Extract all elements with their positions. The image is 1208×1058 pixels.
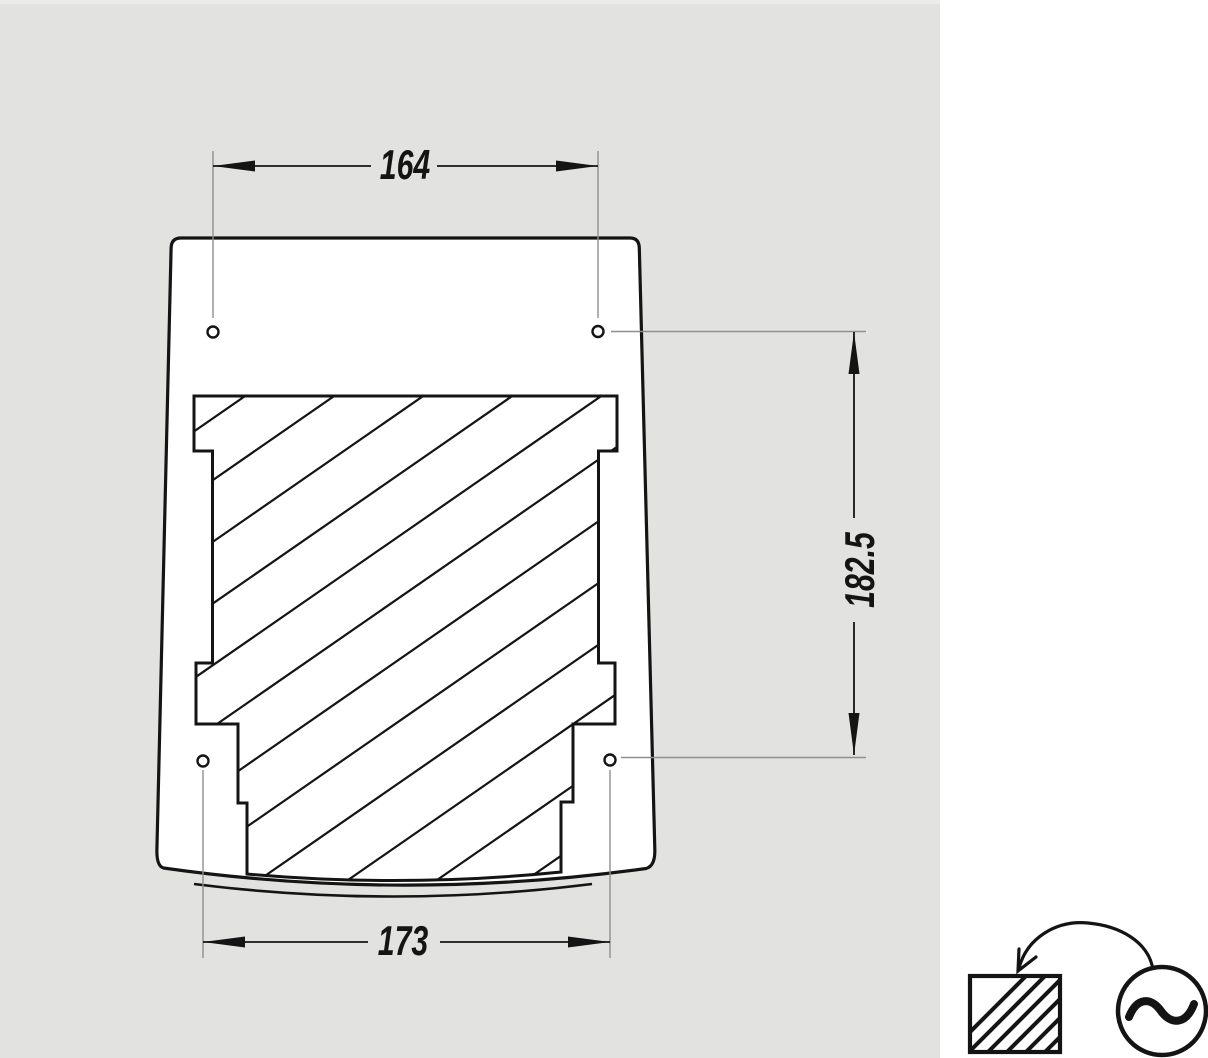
replace-arrow-curve	[1019, 923, 1152, 968]
arrow-173-right	[568, 937, 610, 948]
mounting-hole-top-left	[208, 327, 219, 338]
technical-drawing-svg	[0, 0, 1208, 1058]
arrow-164-right	[556, 161, 598, 172]
mounting-hole-bottom-left	[198, 756, 209, 767]
dimension-label-173: 173	[331, 919, 475, 963]
mounting-hole-top-right	[593, 326, 604, 337]
dimension-label-182-5: 182.5	[838, 498, 882, 642]
dimension-label-164: 164	[333, 143, 477, 187]
replace-arrow-icon	[1018, 923, 1152, 971]
arrow-173-left	[203, 937, 245, 948]
mounting-hole-bottom-right	[605, 755, 616, 766]
arrow-182-top	[849, 332, 860, 374]
drawing-canvas: 164 182.5 173	[0, 0, 1208, 1058]
legend-icon-group	[946, 923, 1206, 1056]
arrow-182-bottom	[849, 713, 860, 755]
arrow-164-left	[213, 161, 255, 172]
